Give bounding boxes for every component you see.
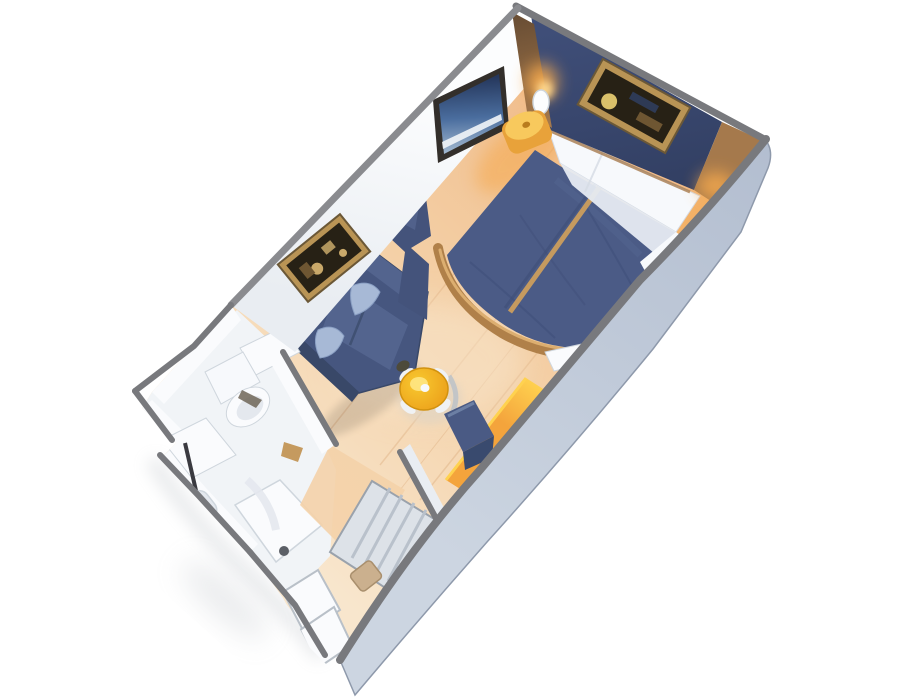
stateroom-floorplan-stage (0, 0, 900, 697)
vanity-mirror-oval (533, 90, 549, 114)
stateroom-3d-floorplan (0, 0, 900, 697)
shower-drain (279, 546, 289, 556)
table-cup (421, 384, 430, 392)
